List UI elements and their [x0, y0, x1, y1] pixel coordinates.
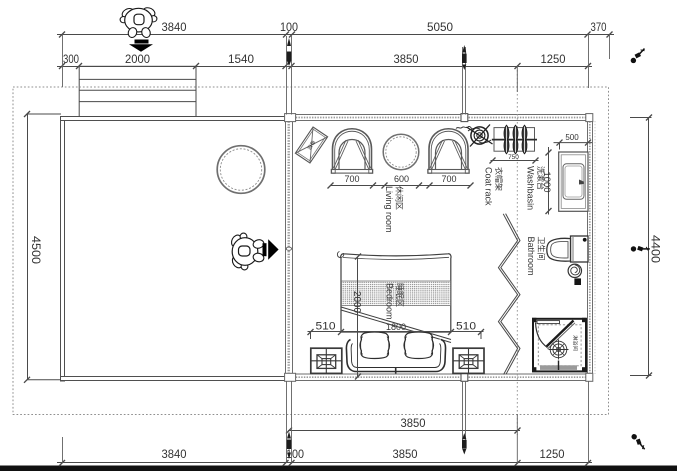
- svg-text:1250: 1250: [541, 52, 566, 66]
- svg-text:Living room: Living room: [384, 186, 394, 233]
- svg-text:100: 100: [280, 20, 298, 34]
- svg-text:Bathroom: Bathroom: [526, 237, 536, 276]
- svg-text:3840: 3840: [162, 20, 187, 34]
- svg-text:600: 600: [394, 174, 409, 184]
- svg-text:2000: 2000: [351, 291, 362, 313]
- svg-text:1540: 1540: [228, 52, 254, 66]
- svg-text:睡眠区: 睡眠区: [395, 283, 404, 307]
- svg-text:4400: 4400: [649, 235, 663, 263]
- svg-text:700: 700: [344, 174, 359, 184]
- svg-text:3840: 3840: [162, 447, 187, 461]
- svg-text:Bedroom: Bedroom: [385, 283, 395, 320]
- svg-text:370: 370: [591, 20, 607, 34]
- svg-text:4500: 4500: [29, 236, 43, 264]
- svg-text:休闲区: 休闲区: [395, 186, 405, 210]
- svg-text:2000: 2000: [125, 52, 150, 66]
- svg-text:Washbasin: Washbasin: [526, 166, 536, 210]
- svg-text:衣帽架: 衣帽架: [494, 167, 504, 191]
- svg-text:3850: 3850: [394, 52, 419, 66]
- svg-text:3850: 3850: [401, 416, 426, 430]
- svg-text:1800: 1800: [386, 322, 406, 332]
- svg-text:淋浴间: 淋浴间: [572, 335, 580, 351]
- svg-text:Coat rack: Coat rack: [484, 167, 494, 206]
- svg-text:750: 750: [508, 154, 519, 161]
- svg-text:510: 510: [316, 321, 336, 333]
- svg-text:300: 300: [63, 52, 79, 66]
- svg-text:1250: 1250: [540, 447, 565, 461]
- svg-text:卫生间: 卫生间: [537, 237, 547, 261]
- svg-text:510: 510: [456, 321, 476, 333]
- svg-text:500: 500: [565, 133, 579, 142]
- svg-text:5050: 5050: [427, 20, 453, 34]
- svg-text:700: 700: [441, 174, 456, 184]
- svg-text:3850: 3850: [393, 447, 418, 461]
- svg-text:洗漱台: 洗漱台: [536, 166, 546, 190]
